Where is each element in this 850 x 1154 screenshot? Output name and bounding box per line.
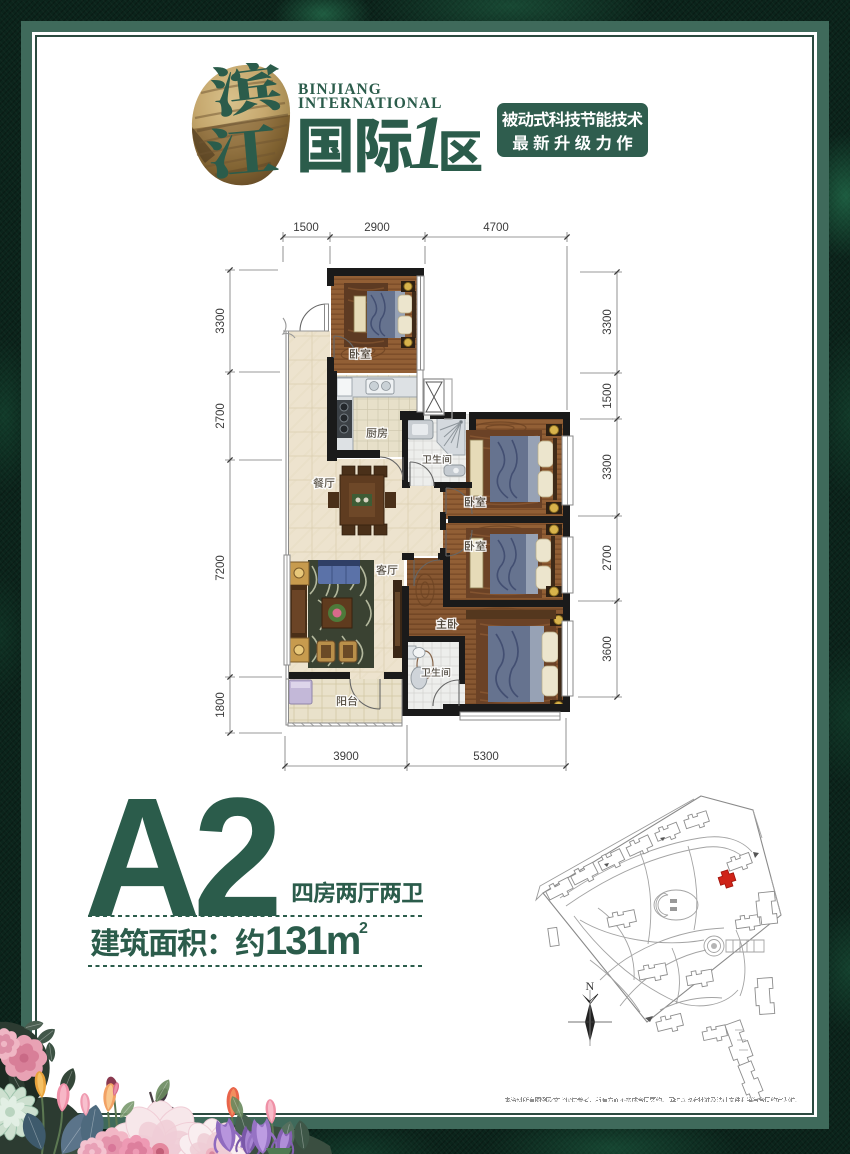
svg-text:3300: 3300 (215, 308, 227, 334)
svg-text:1: 1 (408, 101, 446, 185)
svg-text:3300: 3300 (602, 454, 614, 480)
svg-text:2700: 2700 (602, 545, 614, 571)
svg-text:1500: 1500 (602, 383, 614, 409)
svg-text:1800: 1800 (215, 692, 227, 718)
svg-text:3600: 3600 (602, 636, 614, 662)
svg-text:7200: 7200 (215, 555, 227, 581)
svg-text:5300: 5300 (473, 751, 499, 763)
svg-text:3300: 3300 (602, 309, 614, 335)
svg-text:2: 2 (359, 921, 368, 937)
svg-text:2900: 2900 (364, 222, 390, 234)
svg-text:4700: 4700 (483, 222, 509, 234)
svg-text:3900: 3900 (333, 751, 359, 763)
svg-text:2700: 2700 (215, 403, 227, 429)
svg-text:1500: 1500 (293, 222, 319, 234)
svg-text:131m: 131m (265, 921, 360, 963)
